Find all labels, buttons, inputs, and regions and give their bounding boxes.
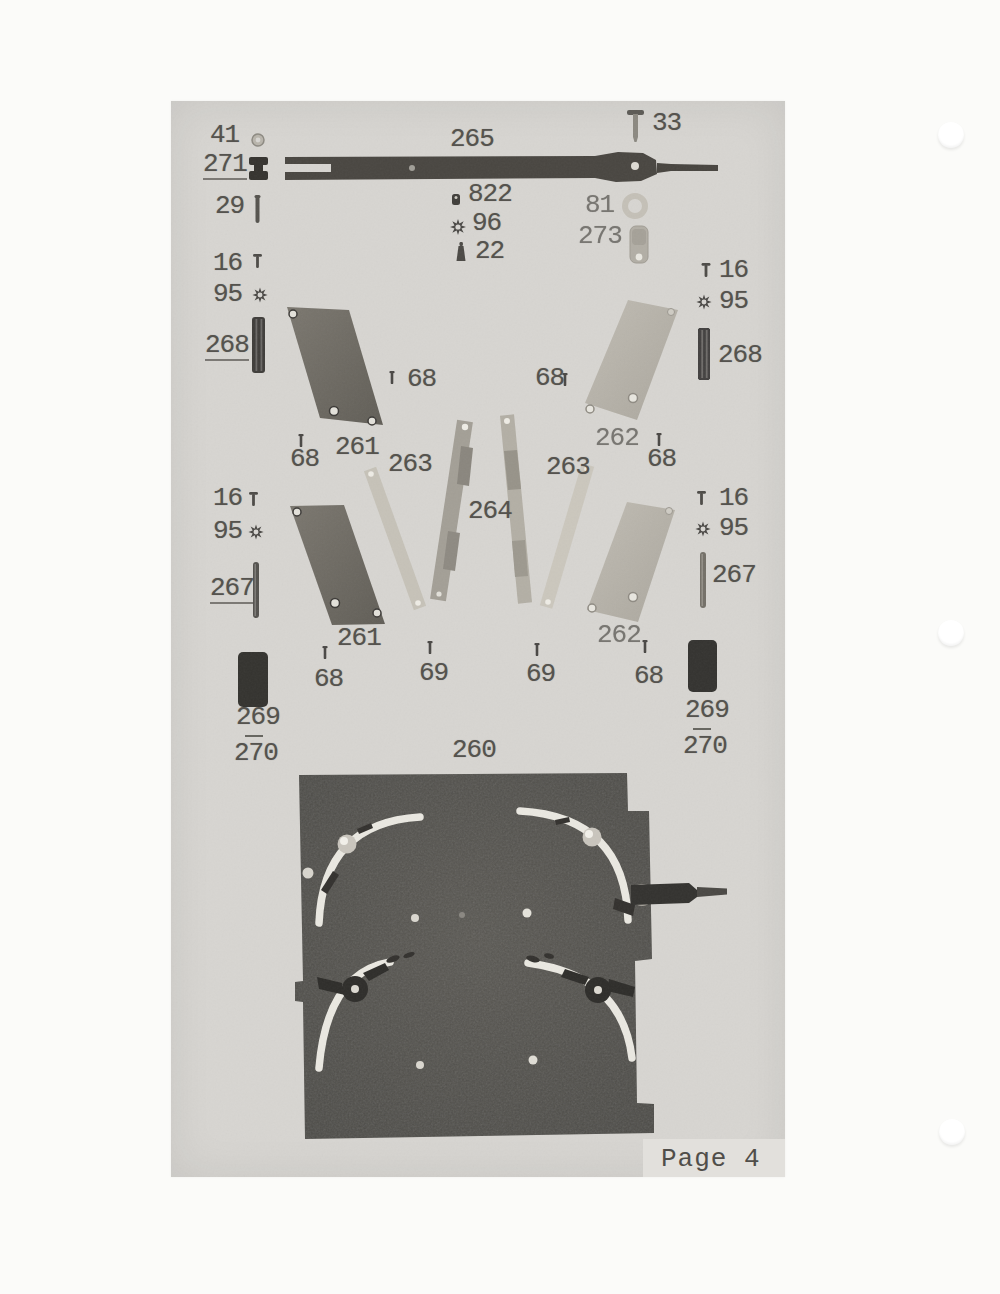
part-label-16: 16	[719, 257, 748, 283]
part-label-95: 95	[213, 518, 242, 544]
part-label-68: 68	[407, 366, 436, 392]
part-label-822: 822	[468, 181, 512, 207]
part-label-260: 260	[452, 737, 496, 763]
punch-hole-middle	[938, 620, 964, 646]
part-label-271: 271	[203, 151, 247, 180]
part-label-265: 265	[450, 126, 494, 152]
part-label-96: 96	[472, 210, 501, 236]
part-label-273: 273	[578, 223, 622, 249]
part-label-95: 95	[213, 281, 242, 307]
part-label-16: 16	[213, 485, 242, 511]
part-label-95: 95	[719, 288, 748, 314]
part-label-267: 267	[210, 575, 254, 604]
punch-hole-bottom	[939, 1119, 965, 1145]
part-label-261: 261	[337, 625, 381, 651]
part-label-29: 29	[215, 193, 244, 219]
page-number: Page 4	[661, 1146, 761, 1172]
part-label-267: 267	[712, 562, 756, 588]
part-label-268: 268	[718, 342, 762, 368]
part-label-270: 270	[683, 733, 727, 759]
part-label-22: 22	[475, 238, 504, 264]
punch-hole-top	[938, 122, 964, 148]
part-label-263: 263	[546, 454, 590, 480]
part-label-68: 68	[634, 663, 663, 689]
part-label-69: 69	[526, 661, 555, 687]
part-label-270: 270	[234, 740, 278, 766]
part-label-269: 269	[685, 697, 729, 723]
part-label-262: 262	[595, 425, 639, 451]
part-label-68: 68	[535, 365, 564, 391]
part-label-263: 263	[388, 451, 432, 477]
part-label-81: 81	[585, 192, 614, 218]
part-label-68: 68	[290, 446, 319, 472]
scanned-page: 41 271 265 33 29 822 96 22 81 273 16 95 …	[0, 0, 1000, 1294]
part-label-264: 264	[468, 498, 512, 524]
part-label-268: 268	[205, 332, 249, 361]
part-label-262: 262	[597, 622, 641, 648]
page-number-box: Page 4	[643, 1139, 785, 1177]
part-label-69: 69	[419, 660, 448, 686]
part-label-261: 261	[335, 434, 379, 460]
part-label-269: 269	[236, 704, 280, 730]
part-label-16: 16	[719, 485, 748, 511]
fraction-bar	[693, 728, 711, 730]
part-label-16: 16	[213, 250, 242, 276]
part-label-41: 41	[210, 122, 239, 148]
scan-area: 41 271 265 33 29 822 96 22 81 273 16 95 …	[171, 101, 785, 1177]
part-label-68: 68	[647, 446, 676, 472]
part-label-68: 68	[314, 666, 343, 692]
part-label-95: 95	[719, 515, 748, 541]
part-label-33: 33	[652, 110, 681, 136]
fraction-bar	[245, 735, 263, 737]
